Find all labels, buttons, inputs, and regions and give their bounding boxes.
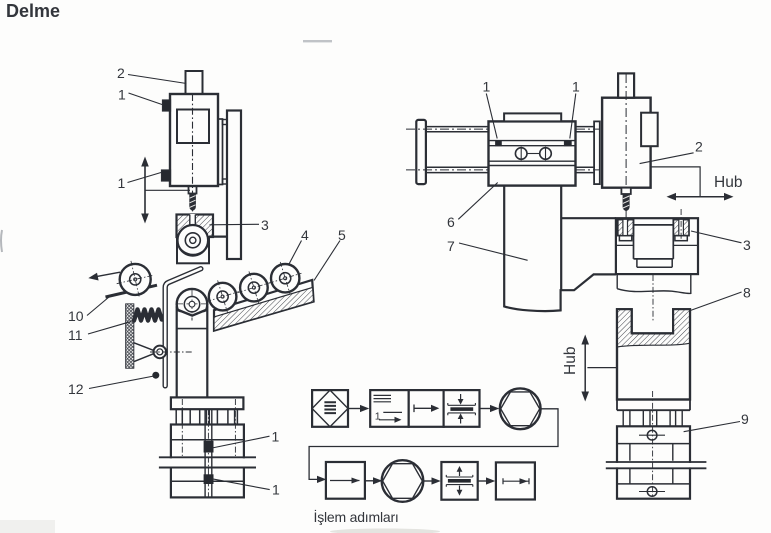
svg-text:9: 9 <box>741 411 749 427</box>
svg-text:1: 1 <box>118 87 126 103</box>
svg-text:Hub: Hub <box>714 174 742 191</box>
svg-text:2: 2 <box>695 139 703 155</box>
svg-text:1: 1 <box>572 79 580 95</box>
svg-text:1: 1 <box>118 175 126 191</box>
svg-text:8: 8 <box>743 285 751 301</box>
svg-text:2: 2 <box>117 65 125 81</box>
svg-text:4: 4 <box>301 227 309 243</box>
svg-text:1: 1 <box>272 482 280 498</box>
svg-text:12: 12 <box>68 381 84 397</box>
svg-text:10: 10 <box>68 308 84 324</box>
svg-text:1: 1 <box>375 411 381 423</box>
svg-text:3: 3 <box>261 217 269 233</box>
svg-text:İşlem adımları: İşlem adımları <box>314 508 399 525</box>
svg-text:Hub: Hub <box>562 347 579 375</box>
svg-text:1: 1 <box>483 79 491 95</box>
svg-text:5: 5 <box>338 227 346 243</box>
svg-text:11: 11 <box>68 327 83 343</box>
svg-text:1: 1 <box>272 429 280 445</box>
svg-text:Delme: Delme <box>6 1 60 21</box>
svg-text:7: 7 <box>447 238 455 254</box>
svg-text:6: 6 <box>447 214 455 230</box>
svg-text:3: 3 <box>743 237 751 253</box>
